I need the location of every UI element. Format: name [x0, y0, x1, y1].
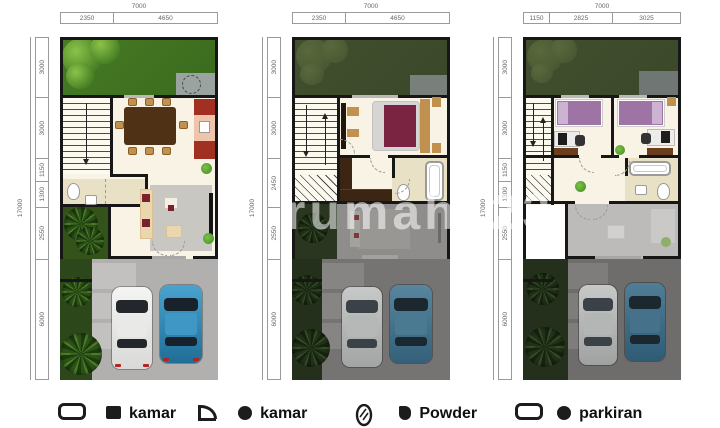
chair: [179, 121, 188, 129]
dim-segment: 2825: [550, 13, 613, 23]
sofa-cushion: [142, 194, 150, 202]
wall: [60, 279, 92, 282]
stair-arrow: [86, 103, 87, 161]
legend: kamar kamar Powder parkiran: [58, 403, 642, 428]
wall: [292, 37, 450, 40]
sink: [85, 195, 97, 205]
service-pad: [639, 71, 681, 97]
dim-segment: 3000: [36, 38, 48, 98]
mirror-icon: [355, 404, 373, 428]
wall: [108, 207, 111, 259]
stairs: [295, 98, 337, 174]
dim-segment: 3000: [268, 38, 280, 98]
bush: [531, 63, 553, 83]
chair: [145, 98, 154, 106]
pillow: [558, 102, 568, 124]
dim-segment: 6000: [268, 260, 280, 379]
car-blue: [160, 285, 202, 363]
dim-segment: 2550: [36, 208, 48, 260]
car-windshield: [164, 298, 198, 311]
dim-total-width: 7000: [292, 1, 450, 12]
plant: [661, 237, 671, 247]
car-blue-dim: [625, 283, 665, 361]
car-rear-window: [395, 337, 427, 346]
chair: [145, 147, 154, 155]
dim-band: 2350 4650: [60, 12, 218, 24]
paving-slab: [322, 263, 364, 289]
car-roof: [395, 313, 427, 335]
toilet: [67, 183, 80, 200]
bed-headboard: [420, 99, 430, 153]
bush: [322, 37, 348, 63]
bush: [66, 63, 94, 89]
car-rear-window: [117, 339, 147, 348]
stair-arrow: [83, 159, 89, 165]
parking-icon: [557, 406, 571, 420]
bathtub: [629, 161, 671, 176]
stair-arrow: [325, 117, 326, 165]
shadow-table: [607, 225, 625, 239]
door-icon: [198, 405, 216, 421]
dim-line: [30, 37, 31, 380]
tv: [209, 193, 213, 235]
legend-label: parkiran: [579, 403, 642, 424]
chair: [162, 98, 171, 106]
wall: [292, 279, 322, 282]
car-roof: [165, 313, 197, 335]
shower-divider: [105, 179, 107, 204]
dim-segment: 3025: [613, 13, 680, 23]
car-taillight: [115, 364, 121, 367]
wall: [110, 174, 148, 177]
dimension-left-1: 3000 3000 1150 1300 2550 6000: [35, 37, 49, 380]
desk-chair: [641, 133, 651, 144]
palm-tree: [525, 327, 565, 367]
bathtub-icon: [515, 403, 543, 420]
car-roof: [347, 315, 377, 337]
watermark: rumah123: [255, 183, 585, 241]
powder-icon: [399, 406, 411, 420]
palm-tree: [292, 329, 330, 367]
dim-band: 2350 4650: [292, 12, 450, 24]
legend-label: Powder: [419, 403, 477, 424]
bush: [300, 63, 324, 85]
dim-band: 1150 2825 3025: [523, 12, 681, 24]
window: [352, 95, 398, 98]
wall: [110, 97, 113, 177]
sofa-cushion: [142, 219, 150, 227]
plot-1: [60, 37, 218, 380]
car-roof: [584, 313, 612, 335]
palm-tree: [76, 227, 104, 255]
dim-segment: 3000: [499, 98, 511, 159]
nightstand: [432, 97, 441, 107]
plant: [203, 233, 214, 244]
dim-label: 17000: [17, 199, 24, 217]
window: [561, 95, 589, 98]
car-blue-dim: [390, 285, 432, 363]
sink: [635, 185, 647, 195]
car-rear-window: [630, 335, 660, 344]
shower-icon: [238, 406, 252, 420]
tank-circle: [182, 75, 201, 94]
bush: [551, 37, 577, 63]
paving-slab: [92, 263, 136, 289]
car-rear-window: [347, 339, 377, 348]
legend-label: kamar: [260, 403, 307, 424]
wall: [392, 158, 395, 178]
dim-segment: 6000: [36, 260, 48, 379]
desk-chair: [575, 135, 585, 146]
dimension-top-2: 7000 2350 4650: [292, 1, 450, 24]
stair-arrow: [306, 105, 307, 153]
wall: [611, 97, 614, 158]
stair-arrow: [322, 113, 328, 119]
nightstand: [667, 97, 676, 106]
computer: [558, 133, 567, 145]
car-taillight: [193, 358, 199, 361]
dimension-top-1: 7000 2350 4650: [60, 1, 218, 24]
palm-tree: [60, 333, 102, 375]
dim-segment: 1150: [499, 159, 511, 182]
dim-total-height: 17000: [14, 37, 26, 380]
car-white-dim: [579, 285, 617, 365]
pillow: [652, 102, 662, 124]
dim-segment: 3000: [268, 98, 280, 159]
car-windshield: [116, 300, 148, 313]
dim-segment: 6000: [499, 260, 511, 379]
bed-icon: [106, 406, 121, 419]
dining-table: [124, 107, 176, 145]
car-windshield: [394, 298, 428, 311]
dim-total-width: 7000: [60, 1, 218, 12]
dim-segment: 3000: [499, 38, 511, 98]
wall: [523, 37, 681, 40]
stairs: [526, 98, 551, 174]
chair: [128, 98, 137, 106]
dim-segment: 2350: [61, 13, 114, 23]
dim-segment: 1150: [36, 159, 48, 182]
kitchen-cabinet: [194, 141, 215, 159]
kitchen-cabinet: [194, 99, 215, 115]
wall: [523, 279, 553, 282]
chair: [162, 147, 171, 155]
car-roof: [630, 311, 660, 333]
stair-arrow: [540, 117, 546, 123]
car-roof: [117, 315, 147, 337]
kitchen-sink: [199, 121, 210, 133]
dim-segment: 1300: [36, 182, 48, 208]
dim-total-width: 7000: [523, 1, 681, 12]
car-taillight: [163, 358, 169, 361]
car-windshield: [629, 296, 661, 309]
car-windshield: [583, 298, 613, 311]
wall: [60, 37, 218, 40]
chair: [115, 121, 124, 129]
stair-arrow: [303, 151, 309, 157]
window: [619, 95, 647, 98]
nightstand: [432, 143, 441, 153]
car-rear-window: [165, 337, 197, 346]
dimension-top-3: 7000 1150 2825 3025: [523, 1, 681, 24]
stair-arrow: [530, 141, 536, 147]
toilet: [657, 183, 670, 200]
pillow: [168, 205, 174, 211]
car-windshield: [346, 300, 378, 313]
car-taillight: [143, 364, 149, 367]
legend-label: kamar: [129, 403, 176, 424]
floorplan-sheet: { "watermark": { "text": "rumah123" }, "…: [0, 0, 720, 420]
stair-arrow: [533, 103, 534, 143]
shelf: [347, 107, 359, 116]
bathtub-icon: [58, 403, 86, 420]
dim-segment: 4650: [114, 13, 217, 23]
service-pad: [410, 75, 448, 97]
dim-segment: 3000: [36, 98, 48, 159]
chair: [128, 147, 137, 155]
car-white-dim: [342, 287, 382, 367]
shelf: [347, 129, 359, 137]
plant: [615, 145, 625, 155]
armchair: [166, 225, 182, 238]
car-white: [112, 287, 152, 369]
dim-segment: 4650: [346, 13, 449, 23]
bed-blanket: [384, 105, 416, 147]
plant: [201, 163, 212, 174]
dim-segment: 1150: [524, 13, 550, 23]
palm-tree: [527, 273, 559, 305]
computer: [661, 131, 670, 143]
car-rear-window: [584, 337, 612, 346]
dim-segment: 2350: [293, 13, 346, 23]
